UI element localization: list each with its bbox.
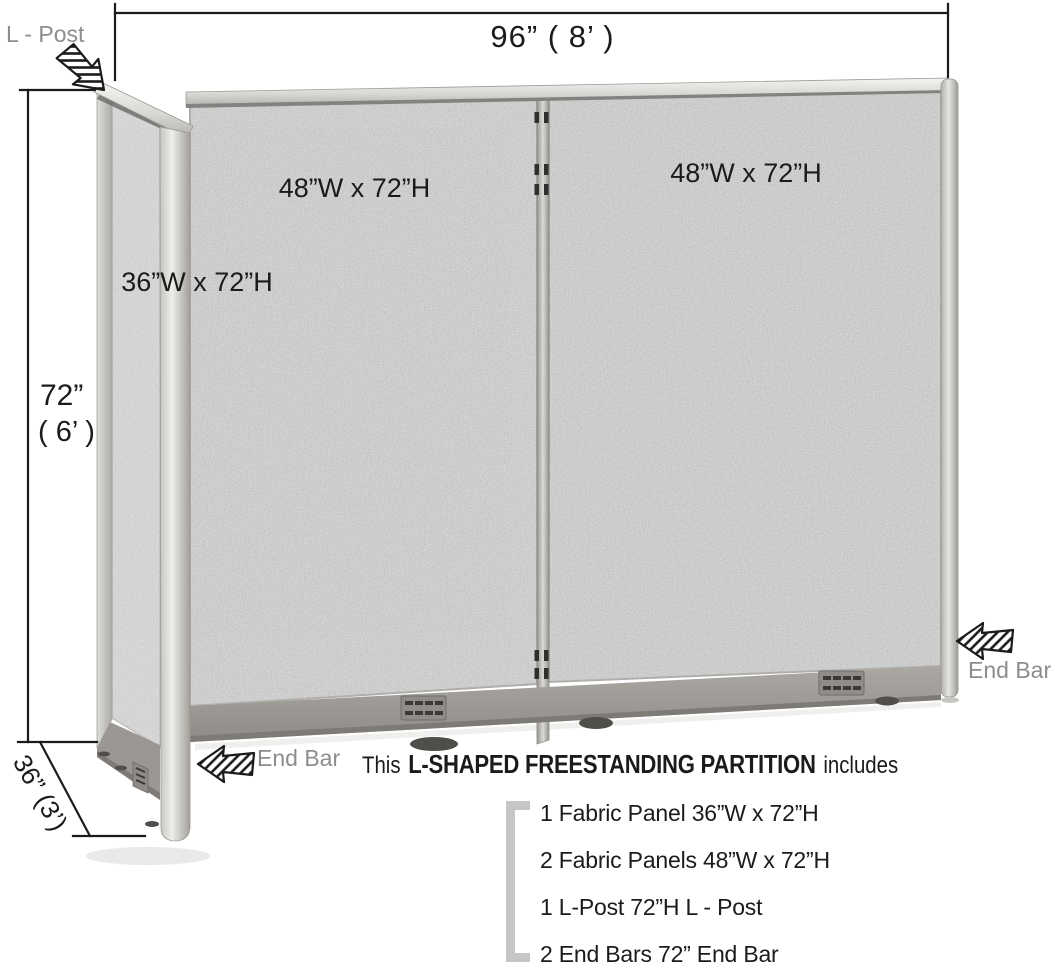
width-dimension-label: 96” ( 8’ )	[430, 20, 675, 54]
cable-outlet-right	[819, 671, 864, 695]
end-bar-right	[941, 79, 958, 697]
height-dimension-inches: 72”	[40, 379, 83, 412]
description-highlight: L-SHAPED FREESTANDING PARTITION	[408, 750, 816, 779]
description-line: This L-SHAPED FREESTANDING PARTITION inc…	[362, 750, 898, 779]
includes-list: 1 Fabric Panel 36”W x 72”H 2 Fabric Pane…	[540, 800, 830, 971]
end-bar-right-arrow-icon	[957, 623, 1013, 659]
include-item-fabric-panel-36: 1 Fabric Panel 36”W x 72”H	[540, 800, 830, 826]
include-item-l-post: 1 L-Post 72”H L - Post	[540, 894, 830, 920]
description-suffix: includes	[823, 753, 898, 779]
end-bar-side-edge	[97, 90, 112, 748]
cable-outlet-left	[401, 696, 446, 720]
side-panel	[94, 83, 193, 841]
end-bar-bottom-arrow-icon	[198, 746, 254, 782]
side-panel-label: 36”W x 72”H	[112, 268, 282, 298]
l-post	[160, 127, 190, 841]
includes-bracket	[506, 801, 530, 962]
l-post-callout-label: L - Post	[6, 22, 84, 47]
include-item-fabric-panels-48: 2 Fabric Panels 48”W x 72”H	[540, 847, 830, 873]
front-left-panel-label: 48”W x 72”H	[262, 174, 447, 204]
front-wall	[100, 78, 1000, 751]
end-bar-bottom-label: End Bar	[257, 746, 340, 771]
front-right-panel-label: 48”W x 72”H	[650, 159, 842, 189]
product-diagram: L - Post 96” ( 8’ ) 48”W x 72”H 48”W x 7…	[0, 0, 1051, 971]
height-dimension-feet: ( 6’ )	[38, 417, 95, 449]
include-item-end-bars: 2 End Bars 72” End Bar	[540, 941, 830, 967]
end-bar-right-label: End Bar	[968, 658, 1051, 683]
description-prefix: This	[362, 753, 401, 779]
